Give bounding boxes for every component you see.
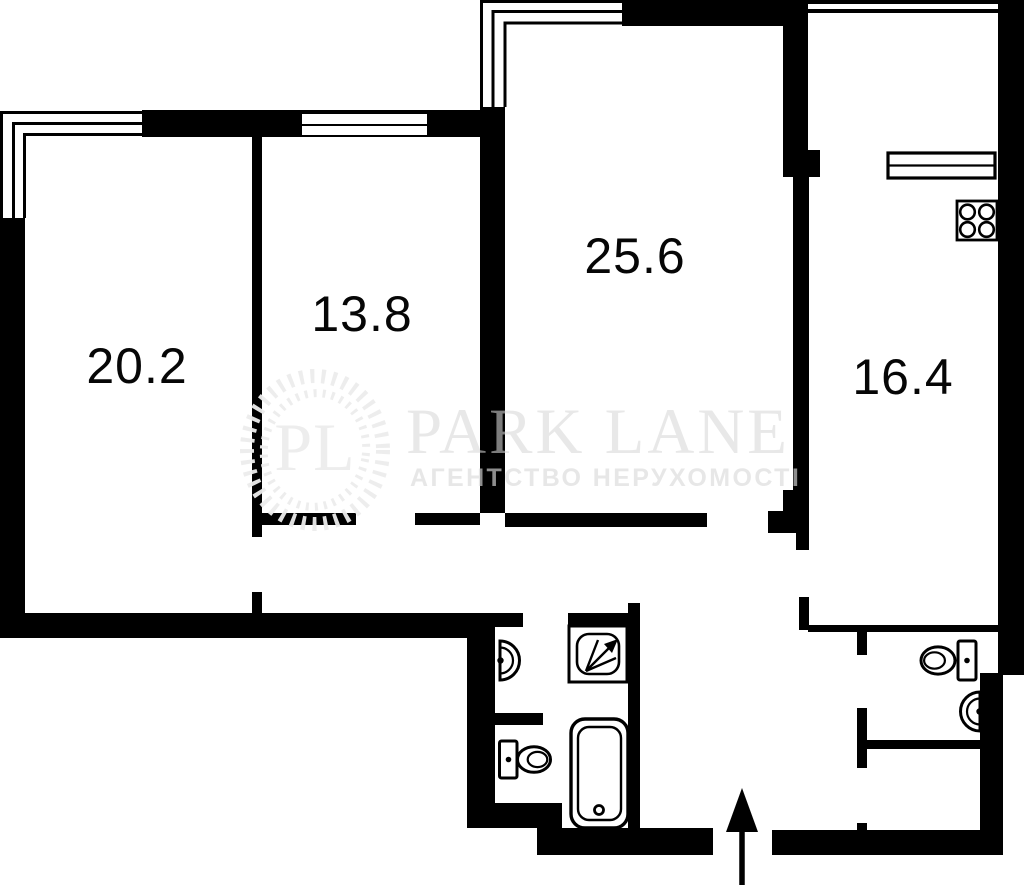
shower-icon (569, 626, 627, 682)
window-line (808, 0, 1000, 4)
sink-icon (961, 692, 983, 731)
wall (783, 150, 820, 177)
wall (415, 513, 480, 525)
toilet-bowl (921, 647, 955, 674)
sink-icon (497, 641, 519, 680)
window-pane (302, 126, 427, 135)
toilet-button (964, 658, 970, 664)
wall (505, 513, 707, 527)
toilet-button (506, 757, 512, 763)
entrance-arrow-icon (726, 788, 758, 885)
bathtub-icon (571, 719, 628, 828)
burner (979, 222, 994, 237)
toilet-icon (921, 641, 976, 680)
wall (0, 613, 470, 638)
window-line (808, 9, 1000, 13)
toilet-icon (500, 741, 551, 778)
wall (252, 135, 262, 537)
floor-plan-geometry (0, 0, 1024, 889)
burner (979, 205, 994, 220)
burner (960, 205, 975, 220)
bathtub-drain (595, 806, 604, 815)
balcony-glazing (808, 0, 1000, 13)
corner-window-top-left (2, 113, 143, 219)
wall (628, 603, 640, 832)
window-line (505, 23, 623, 107)
kitchen-window-sill (888, 153, 995, 178)
window-line (2, 113, 143, 219)
sink-faucet (497, 657, 503, 663)
window-line (493, 12, 623, 108)
wall (495, 713, 543, 725)
stove-icon (957, 201, 997, 240)
wall (495, 613, 523, 627)
wall (980, 673, 1003, 855)
arrow-head (726, 788, 758, 832)
wall (793, 177, 809, 523)
wall (467, 613, 495, 828)
window-line (14, 124, 143, 219)
window-pane (302, 114, 427, 124)
wall (998, 0, 1024, 675)
wall (480, 107, 505, 513)
toilet-bowl (518, 747, 551, 773)
wall (783, 20, 808, 153)
wall (857, 708, 867, 768)
wall (262, 513, 356, 525)
sink-faucet (976, 708, 982, 714)
wall (772, 830, 1003, 855)
wall (857, 823, 867, 832)
wall (142, 110, 262, 137)
wall (252, 592, 262, 615)
window-line (482, 2, 624, 108)
wall (799, 597, 809, 630)
interior-walls (252, 20, 998, 832)
burner (960, 222, 975, 237)
wall (867, 740, 980, 749)
wall (808, 625, 998, 632)
wall (622, 0, 808, 26)
wall (537, 828, 713, 855)
corner-window-room-25-6 (482, 2, 624, 108)
exterior-walls (0, 0, 1024, 855)
wall (0, 218, 25, 638)
floor-plan: PL PARK LANE АГЕНТСТВО НЕРУХОМОСТІ 20.2 … (0, 0, 1024, 889)
wall (857, 630, 867, 655)
window-line (25, 135, 143, 219)
wall (796, 523, 809, 550)
